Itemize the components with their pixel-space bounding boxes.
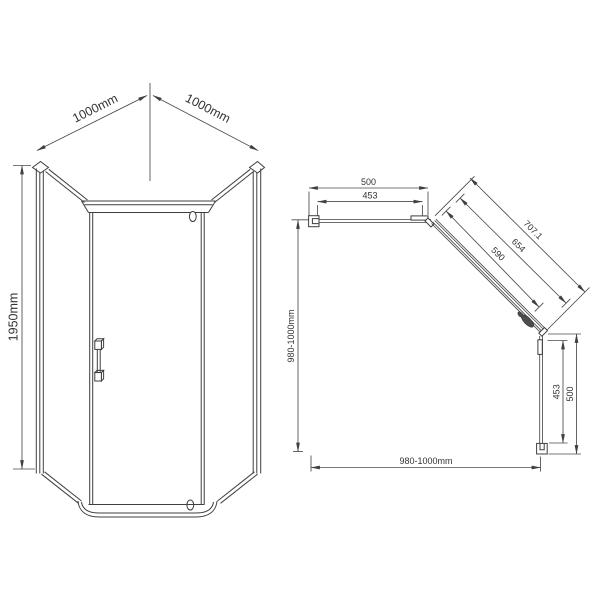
edge-line <box>42 474 79 503</box>
pivot-door <box>90 212 205 511</box>
edge-line <box>221 474 258 503</box>
edge-line <box>215 172 254 203</box>
diagonal-middle-dimension-line <box>460 198 566 303</box>
bottom-overall-label: 980-1000mm <box>399 456 452 466</box>
frame-bevel <box>209 201 216 213</box>
extension-line <box>435 176 475 216</box>
edge-line <box>218 472 255 501</box>
left-overall-label: 980-1000mm <box>286 309 296 362</box>
left-post-cap <box>33 162 49 174</box>
plan-view: 500 453 590 654 707.1 <box>286 176 590 471</box>
right-side-panel <box>253 169 261 474</box>
left-side-panel <box>36 169 43 474</box>
edge-line <box>45 472 82 501</box>
plan-diagonal-dimensions: 590 654 707.1 <box>435 176 590 329</box>
right-width-label: 500 <box>565 386 575 401</box>
bottom-angled-edges <box>42 472 258 504</box>
top-width-label: 500 <box>361 177 376 187</box>
edge-line <box>46 172 85 203</box>
door-handle <box>95 339 104 381</box>
right-glass-label: 453 <box>552 384 562 399</box>
frame-profile <box>411 216 428 220</box>
glass-line <box>436 219 546 329</box>
diagonal-inner-label: 590 <box>489 245 507 263</box>
handle-peg <box>95 341 102 349</box>
wall-profile-bracket <box>537 443 548 454</box>
height-label: 1950mm <box>7 293 21 342</box>
handle-peg <box>95 373 102 381</box>
frame-bevel <box>82 201 89 213</box>
plan-diagonal-door <box>432 219 548 336</box>
diagonal-outer-label: 707.1 <box>522 218 545 241</box>
plan-right-dimensions: 453 500 <box>548 334 582 454</box>
right-post-cap <box>250 162 265 174</box>
edge-line <box>212 169 251 200</box>
corner-connector <box>539 328 548 337</box>
front-view: 1000mm 1000mm 1950mm <box>7 83 265 517</box>
door-hinge-top-icon <box>189 212 196 222</box>
shower-enclosure-technical-drawing: 1000mm 1000mm 1950mm <box>0 0 600 600</box>
width-left-label: 1000mm <box>70 91 120 125</box>
width-right-label: 1000mm <box>183 91 233 126</box>
glass-line <box>435 220 545 330</box>
plan-top-wall <box>309 216 434 227</box>
front-height-dimension: 1950mm <box>7 166 36 470</box>
front-enclosure <box>33 162 265 518</box>
sill-outer-curve <box>78 501 217 517</box>
top-frame-bar <box>82 201 216 213</box>
plan-top-dimensions: 500 453 <box>309 177 428 216</box>
frame-profile <box>538 340 542 355</box>
top-angled-edges <box>46 169 254 202</box>
bottom-sill <box>78 501 217 517</box>
wall-profile-bracket <box>309 216 319 227</box>
edge-line <box>49 169 88 200</box>
diagonal-outer-dimension-line <box>470 178 585 292</box>
plan-right-wall <box>537 336 548 454</box>
diagonal-middle-label: 654 <box>510 237 528 255</box>
front-top-width-dimensions: 1000mm 1000mm <box>37 83 258 181</box>
top-glass-label: 453 <box>362 190 377 200</box>
extension-line <box>548 288 590 330</box>
